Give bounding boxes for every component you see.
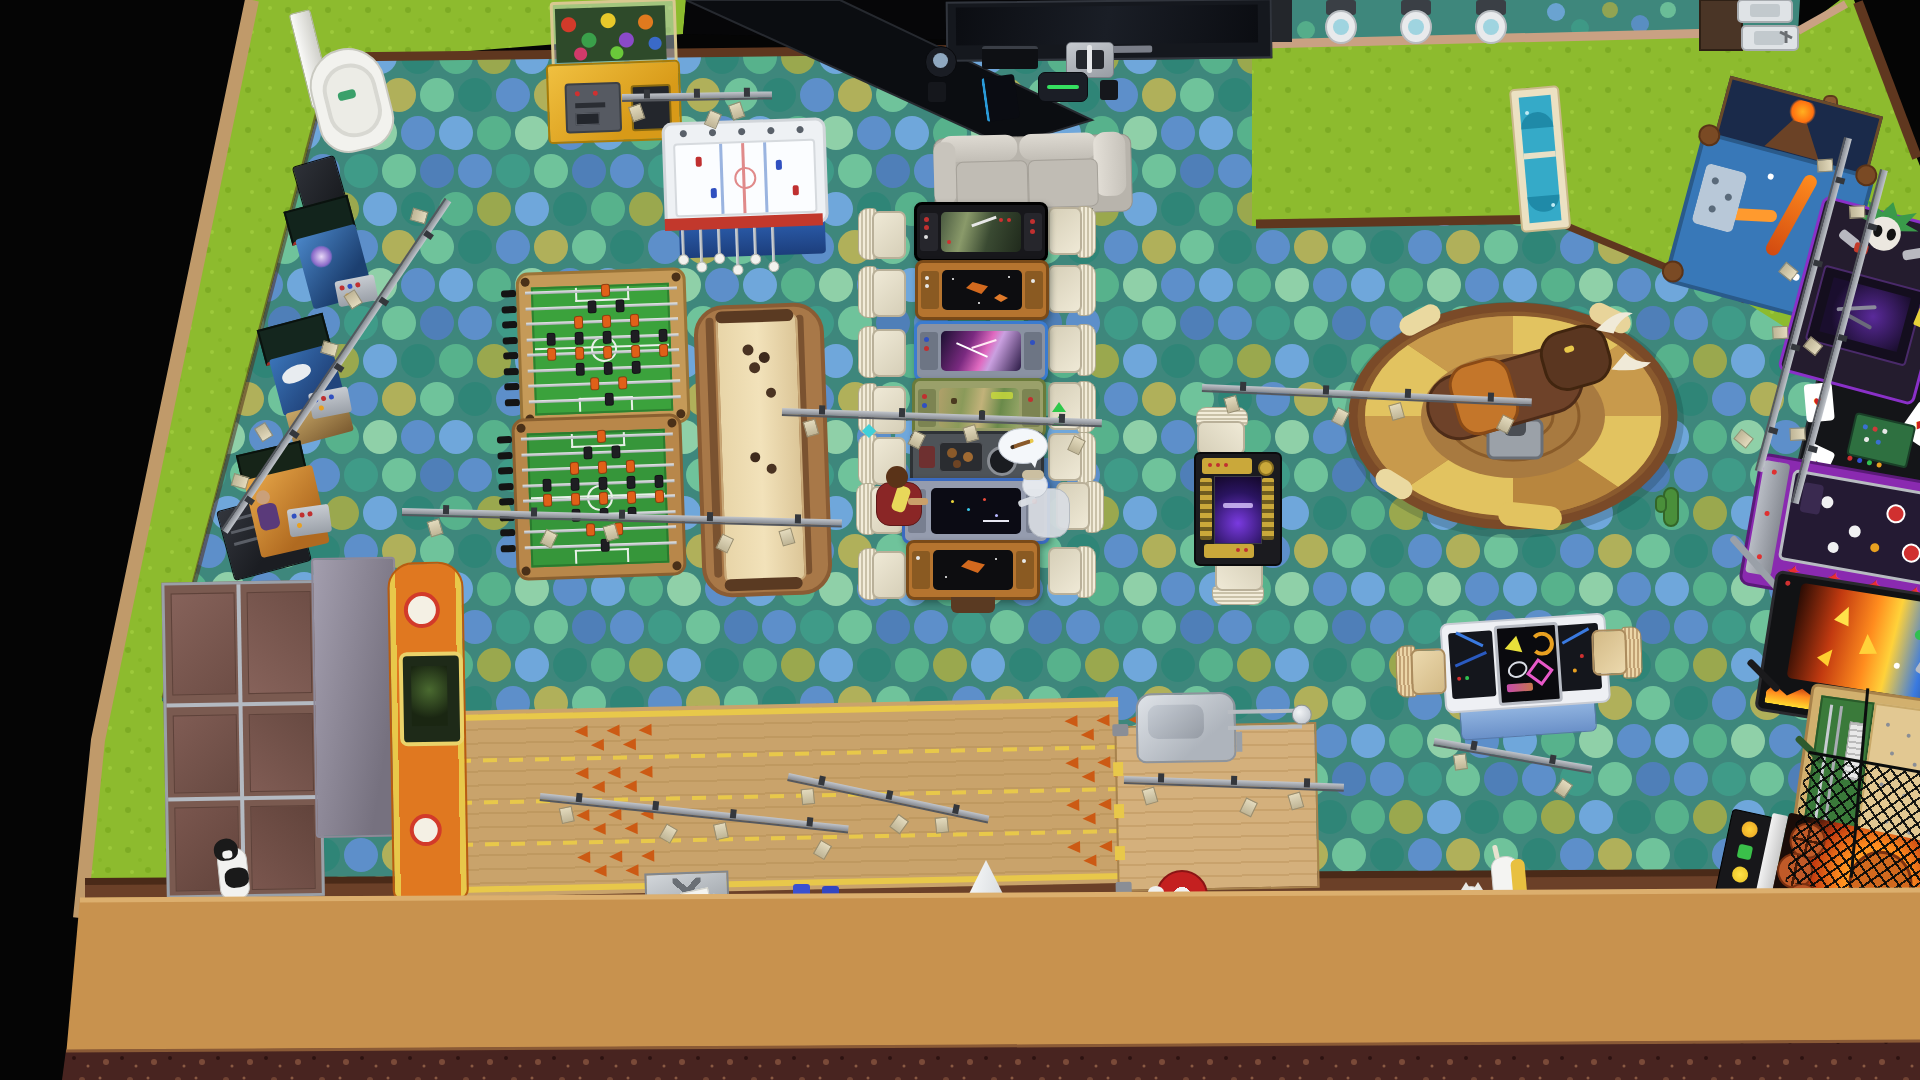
rod-knob xyxy=(714,253,725,264)
light-mount xyxy=(899,408,905,417)
playfield xyxy=(1787,583,1920,703)
blue-line xyxy=(763,142,768,212)
chair[interactable] xyxy=(858,325,904,377)
foosball-player xyxy=(631,345,640,358)
light-mount xyxy=(1304,778,1310,787)
back-cushion xyxy=(1019,132,1098,160)
sink[interactable] xyxy=(1742,26,1798,50)
lane-arrow xyxy=(1083,855,1096,867)
gold-panel xyxy=(1202,458,1252,474)
ramp-logo xyxy=(409,814,442,847)
shuffleboard[interactable] xyxy=(693,302,833,598)
basketball-net xyxy=(1786,751,1920,906)
lane-arrow xyxy=(638,724,651,736)
chair-seat xyxy=(1048,265,1082,313)
table-pedestal xyxy=(951,597,995,613)
lane-arrow xyxy=(1065,757,1078,769)
lane-arrow xyxy=(1098,798,1111,810)
hockey-top xyxy=(661,117,829,229)
gold-side xyxy=(1262,478,1274,540)
green-button xyxy=(1737,844,1754,861)
chair-seat xyxy=(1048,547,1082,595)
lane-arrow xyxy=(1082,771,1095,783)
neon-arc xyxy=(1529,631,1555,657)
lane-arrow xyxy=(606,725,619,737)
foosball-player xyxy=(598,476,607,489)
housing-top-slab xyxy=(311,557,400,838)
lane-line xyxy=(459,829,1121,847)
lane-arrow xyxy=(1081,729,1094,741)
rod-handle xyxy=(498,482,513,490)
prizes xyxy=(555,5,667,63)
light-mount xyxy=(653,801,660,811)
bath-cabinet[interactable] xyxy=(1700,0,1742,50)
mane xyxy=(1510,859,1528,904)
gutter-end xyxy=(1115,846,1125,860)
foosball-player xyxy=(570,477,579,490)
lane-arrow xyxy=(625,864,638,876)
foosball-player xyxy=(598,461,607,474)
rod-handle xyxy=(503,336,518,344)
neon-scribble xyxy=(1505,658,1530,681)
player-red xyxy=(793,185,799,195)
lane-arrow xyxy=(1067,841,1080,853)
track-lamp-icon xyxy=(713,822,729,840)
track-lamp-icon xyxy=(559,806,575,824)
tower-console[interactable] xyxy=(981,74,1020,122)
track-lamp-icon xyxy=(1789,427,1806,441)
track-lamp-icon xyxy=(1817,159,1834,173)
light-mount xyxy=(707,512,713,521)
chair[interactable] xyxy=(1050,207,1096,259)
gaming-table[interactable] xyxy=(914,321,1048,381)
speaker-cone xyxy=(933,53,948,68)
chair-seat xyxy=(872,551,906,599)
chair[interactable] xyxy=(858,547,904,599)
foosball-table[interactable] xyxy=(515,267,690,429)
food-tray xyxy=(939,442,983,472)
corner-cap xyxy=(1116,882,1132,894)
toilet[interactable] xyxy=(1326,0,1356,43)
end-cap xyxy=(724,577,802,592)
lane-arrow xyxy=(575,767,588,779)
gold-side xyxy=(1200,478,1212,540)
player-blue xyxy=(776,160,782,170)
foosball-player xyxy=(570,462,579,475)
side-panel xyxy=(921,271,939,309)
laser xyxy=(983,520,1009,522)
foosball-player xyxy=(611,445,620,458)
foosball-player xyxy=(542,478,551,491)
toilet[interactable] xyxy=(1401,0,1431,43)
gaming-table[interactable] xyxy=(906,540,1040,600)
chair[interactable] xyxy=(1197,407,1249,453)
light-mount xyxy=(1549,754,1556,764)
mini-speaker[interactable] xyxy=(928,82,946,102)
light-mount xyxy=(819,405,825,414)
lane-arrow xyxy=(1099,840,1112,852)
foosball-player xyxy=(630,329,639,342)
light-mount xyxy=(1867,222,1877,230)
gold-panel xyxy=(1204,544,1254,558)
light-mount xyxy=(1405,389,1411,398)
lane-arrow xyxy=(607,767,620,779)
table-screen xyxy=(931,488,1021,534)
foosball-player xyxy=(602,330,611,343)
mini-speaker[interactable] xyxy=(1100,80,1118,100)
lane-line xyxy=(457,745,1119,763)
sprite xyxy=(971,216,996,228)
foosball-player xyxy=(547,348,556,361)
cat-ear xyxy=(1473,882,1483,890)
foosball-player xyxy=(627,491,636,504)
lane-arrow xyxy=(593,865,606,877)
lane-arrow xyxy=(608,809,621,821)
foosball-player xyxy=(658,328,667,341)
player-red xyxy=(696,157,702,167)
chair-seat xyxy=(1410,648,1447,695)
ghost-hair xyxy=(1022,470,1044,480)
chair[interactable] xyxy=(1050,325,1096,377)
foosball-player xyxy=(599,492,608,505)
lane-arrow xyxy=(591,739,604,751)
center-circle xyxy=(734,167,757,190)
chair[interactable] xyxy=(1050,265,1096,317)
hood-top xyxy=(1148,704,1205,739)
chair[interactable] xyxy=(858,207,904,259)
track-lamp-icon xyxy=(801,788,816,805)
foosball-player xyxy=(615,299,624,312)
side-art xyxy=(1448,630,1496,699)
foosball-player xyxy=(586,523,595,536)
ramp-logo xyxy=(404,592,441,629)
light-mount xyxy=(1768,426,1778,434)
lane-arrow xyxy=(624,822,637,834)
vr-headset[interactable] xyxy=(1038,72,1088,102)
foosball-player xyxy=(574,331,583,344)
panel xyxy=(173,714,238,793)
light-mount xyxy=(575,793,582,803)
foosball-player xyxy=(597,430,606,443)
cactus[interactable] xyxy=(1656,488,1678,526)
table-screen xyxy=(933,550,1013,590)
light-mount xyxy=(694,89,700,98)
sim-ghost[interactable] xyxy=(1018,470,1074,538)
cabinet-screen xyxy=(1805,264,1920,366)
chair-seat xyxy=(872,269,906,317)
foosball-player xyxy=(605,392,614,405)
rod-knob xyxy=(732,264,743,275)
claw-machine[interactable] xyxy=(544,0,683,142)
player-blue xyxy=(711,188,717,198)
sim-hair xyxy=(886,466,908,488)
foosball-player xyxy=(583,446,592,459)
neon-text xyxy=(1507,683,1533,693)
figure-arm xyxy=(1902,247,1920,260)
flame xyxy=(1859,634,1877,654)
light-mount xyxy=(1470,741,1477,751)
screenshot-stage: ♥ ♠ ♣ ♦ ✦✦✦✦ xyxy=(0,0,1920,1080)
foosball-player xyxy=(626,460,635,473)
sim-man[interactable] xyxy=(868,462,922,528)
armrest xyxy=(933,142,957,205)
housing-screen xyxy=(399,651,465,746)
bowling-pin-housing[interactable] xyxy=(159,555,469,908)
table-top xyxy=(1439,612,1611,713)
side-panel xyxy=(920,332,938,370)
lane-arrow xyxy=(639,766,652,778)
bubble-hockey[interactable] xyxy=(661,117,832,279)
lawn-wall-1 xyxy=(1256,219,1550,224)
table-screen xyxy=(941,331,1021,371)
rod-handle xyxy=(498,467,513,475)
light-mount xyxy=(1158,773,1164,782)
neon-table[interactable] xyxy=(1439,606,1613,741)
joystick xyxy=(1258,460,1274,476)
chair-seat xyxy=(1591,629,1628,676)
light-mount xyxy=(979,411,985,420)
light-mount xyxy=(885,790,893,800)
dock-handle xyxy=(1087,45,1092,73)
light-mount xyxy=(795,514,801,523)
black-white-cat[interactable] xyxy=(209,836,257,904)
foosball-player xyxy=(602,315,611,328)
eye-patch xyxy=(1885,228,1897,242)
foosball-player xyxy=(587,300,596,313)
corner-cap xyxy=(1112,724,1128,736)
foosball-player xyxy=(626,475,635,488)
coin-tray xyxy=(575,112,599,125)
foosball-player xyxy=(546,332,555,345)
light-mount xyxy=(1059,414,1065,423)
flame xyxy=(1817,645,1838,666)
bubble-tail xyxy=(1028,458,1038,468)
rod-handle xyxy=(504,383,519,391)
field-detail xyxy=(1915,655,1920,682)
light-mount xyxy=(1323,385,1329,394)
lane-arrow xyxy=(574,725,587,737)
lane-arrow xyxy=(623,738,636,750)
track-lamp-icon xyxy=(1453,753,1468,771)
toilet[interactable] xyxy=(1476,0,1506,43)
sim-arm xyxy=(908,498,928,505)
rod-knob xyxy=(750,254,761,265)
light-mount xyxy=(807,817,814,827)
lane-arrow xyxy=(1064,715,1077,727)
chair-seat xyxy=(1048,207,1082,255)
lane-arrow xyxy=(593,823,606,835)
light-mount xyxy=(1835,176,1845,184)
foosball-player xyxy=(601,284,610,297)
green-arrow-icon xyxy=(1052,402,1066,412)
control-panel xyxy=(287,504,332,538)
blue-line xyxy=(719,144,724,214)
foosball-player xyxy=(659,344,668,357)
panel xyxy=(247,591,313,694)
rod-handle xyxy=(501,544,516,552)
foosball-player xyxy=(603,361,612,374)
chair-seat xyxy=(1197,421,1245,455)
foosball-player xyxy=(543,494,552,507)
neon-triangle xyxy=(1505,634,1525,652)
lane-arrow xyxy=(1096,714,1109,726)
gaming-table[interactable] xyxy=(915,260,1049,320)
foosball-player xyxy=(575,347,584,360)
lane-arrow xyxy=(592,781,605,793)
foosball-player xyxy=(571,493,580,506)
foosball-player xyxy=(655,490,664,503)
lane-arrow xyxy=(1066,799,1079,811)
purple-gaming-table[interactable] xyxy=(1194,452,1282,566)
coin-panel xyxy=(564,82,622,134)
game-logo xyxy=(991,392,1013,399)
foosball-table[interactable] xyxy=(511,413,687,581)
wooden-chair[interactable] xyxy=(1593,627,1643,681)
blue-cup[interactable] xyxy=(793,884,810,908)
white-cat[interactable] xyxy=(1458,886,1484,912)
rod-handle xyxy=(501,305,516,313)
laser xyxy=(971,339,996,349)
speech-bubble xyxy=(998,428,1048,468)
foosball-player xyxy=(618,376,627,389)
coin-slot xyxy=(575,102,605,108)
light-mount xyxy=(619,510,625,519)
lane-arrow xyxy=(609,851,622,863)
chair[interactable] xyxy=(858,265,904,317)
blue-cup[interactable] xyxy=(822,886,839,910)
lane-arrow xyxy=(577,851,590,863)
lane-arrow xyxy=(1097,756,1110,768)
rail-post xyxy=(1236,732,1242,752)
track-lamp-icon xyxy=(1849,205,1866,219)
light-mount xyxy=(730,809,737,819)
rink xyxy=(673,139,817,218)
rod-knob xyxy=(768,261,779,272)
hat-brim xyxy=(1148,886,1164,898)
panel xyxy=(171,592,237,695)
flame xyxy=(1834,603,1856,626)
side-panel xyxy=(912,551,930,589)
game-console[interactable] xyxy=(982,46,1038,69)
tv-screen xyxy=(956,4,1258,45)
return-hood xyxy=(1135,692,1236,764)
lane-arrow xyxy=(1082,813,1095,825)
side-panel xyxy=(1016,551,1034,589)
light-mount xyxy=(744,88,750,97)
purple-screen xyxy=(1214,476,1262,544)
gaming-table[interactable] xyxy=(914,202,1048,262)
foosball-player xyxy=(590,377,599,390)
score-panel xyxy=(1691,163,1748,234)
chair[interactable] xyxy=(1050,547,1096,599)
chair-seat xyxy=(872,329,906,377)
light-mount xyxy=(1240,382,1246,391)
rod-handle xyxy=(497,451,512,459)
table-screen xyxy=(942,270,1022,310)
mechanical-bull[interactable] xyxy=(1338,292,1698,552)
rod-handle xyxy=(503,352,518,360)
table-screen xyxy=(941,212,1021,252)
rod-handle xyxy=(497,436,512,444)
panel xyxy=(249,713,314,792)
rod-handle xyxy=(502,321,517,329)
sim-red-hat[interactable] xyxy=(1156,870,1208,922)
side-panel xyxy=(1025,271,1043,309)
vr-light xyxy=(1047,85,1079,89)
side-panel xyxy=(1024,213,1042,251)
panel xyxy=(250,805,315,890)
screen-text xyxy=(1223,503,1253,508)
foosball-player xyxy=(603,346,612,359)
light-mount xyxy=(952,804,960,814)
light-mount xyxy=(1790,343,1800,351)
wooden-chair[interactable] xyxy=(1395,643,1445,697)
light-mount xyxy=(1813,260,1823,268)
cat-ear xyxy=(1461,882,1471,890)
bubble-body xyxy=(998,428,1048,464)
side-panel xyxy=(1024,332,1042,370)
side-panel xyxy=(920,213,938,251)
light-mount xyxy=(644,90,650,99)
gutter-end xyxy=(1113,762,1123,776)
speaker-ball[interactable] xyxy=(925,46,957,78)
pale-horse[interactable] xyxy=(1483,846,1533,916)
track-lamp-icon xyxy=(934,816,949,833)
lane-arrow xyxy=(576,809,589,821)
return-rail xyxy=(1228,709,1302,714)
light-mount xyxy=(1808,445,1818,453)
neon-screen xyxy=(1494,622,1563,706)
foosball-player xyxy=(630,314,639,327)
foosball-player xyxy=(575,362,584,375)
gutter-end xyxy=(1114,804,1124,818)
rod-knob xyxy=(696,261,707,272)
light-mount xyxy=(443,505,449,514)
ball-return[interactable] xyxy=(1135,689,1308,768)
rod-handle xyxy=(504,367,519,375)
light-mount xyxy=(531,507,537,516)
seat-cushion xyxy=(1028,158,1099,208)
foosball-player xyxy=(631,360,640,373)
rod-handle xyxy=(499,498,514,506)
rod-handle xyxy=(505,398,520,406)
track-lamp-icon xyxy=(1772,325,1789,339)
rod-knob xyxy=(678,254,689,265)
rod-handle xyxy=(500,529,515,537)
lane-arrow xyxy=(641,850,654,862)
sink[interactable] xyxy=(1738,0,1792,22)
screen-glow xyxy=(411,666,448,727)
light-mount xyxy=(1487,392,1493,401)
lane-arrow xyxy=(624,780,637,792)
foosball-player xyxy=(654,474,663,487)
rod-handle xyxy=(501,290,516,298)
chair-seat xyxy=(1048,325,1082,373)
return-rail xyxy=(1228,725,1302,730)
light-mount xyxy=(818,776,826,786)
foosball-player xyxy=(574,316,583,329)
mech-strip xyxy=(668,123,814,141)
chair-seat xyxy=(872,211,906,259)
light-mount xyxy=(1838,333,1848,341)
light-mount xyxy=(1231,776,1237,785)
